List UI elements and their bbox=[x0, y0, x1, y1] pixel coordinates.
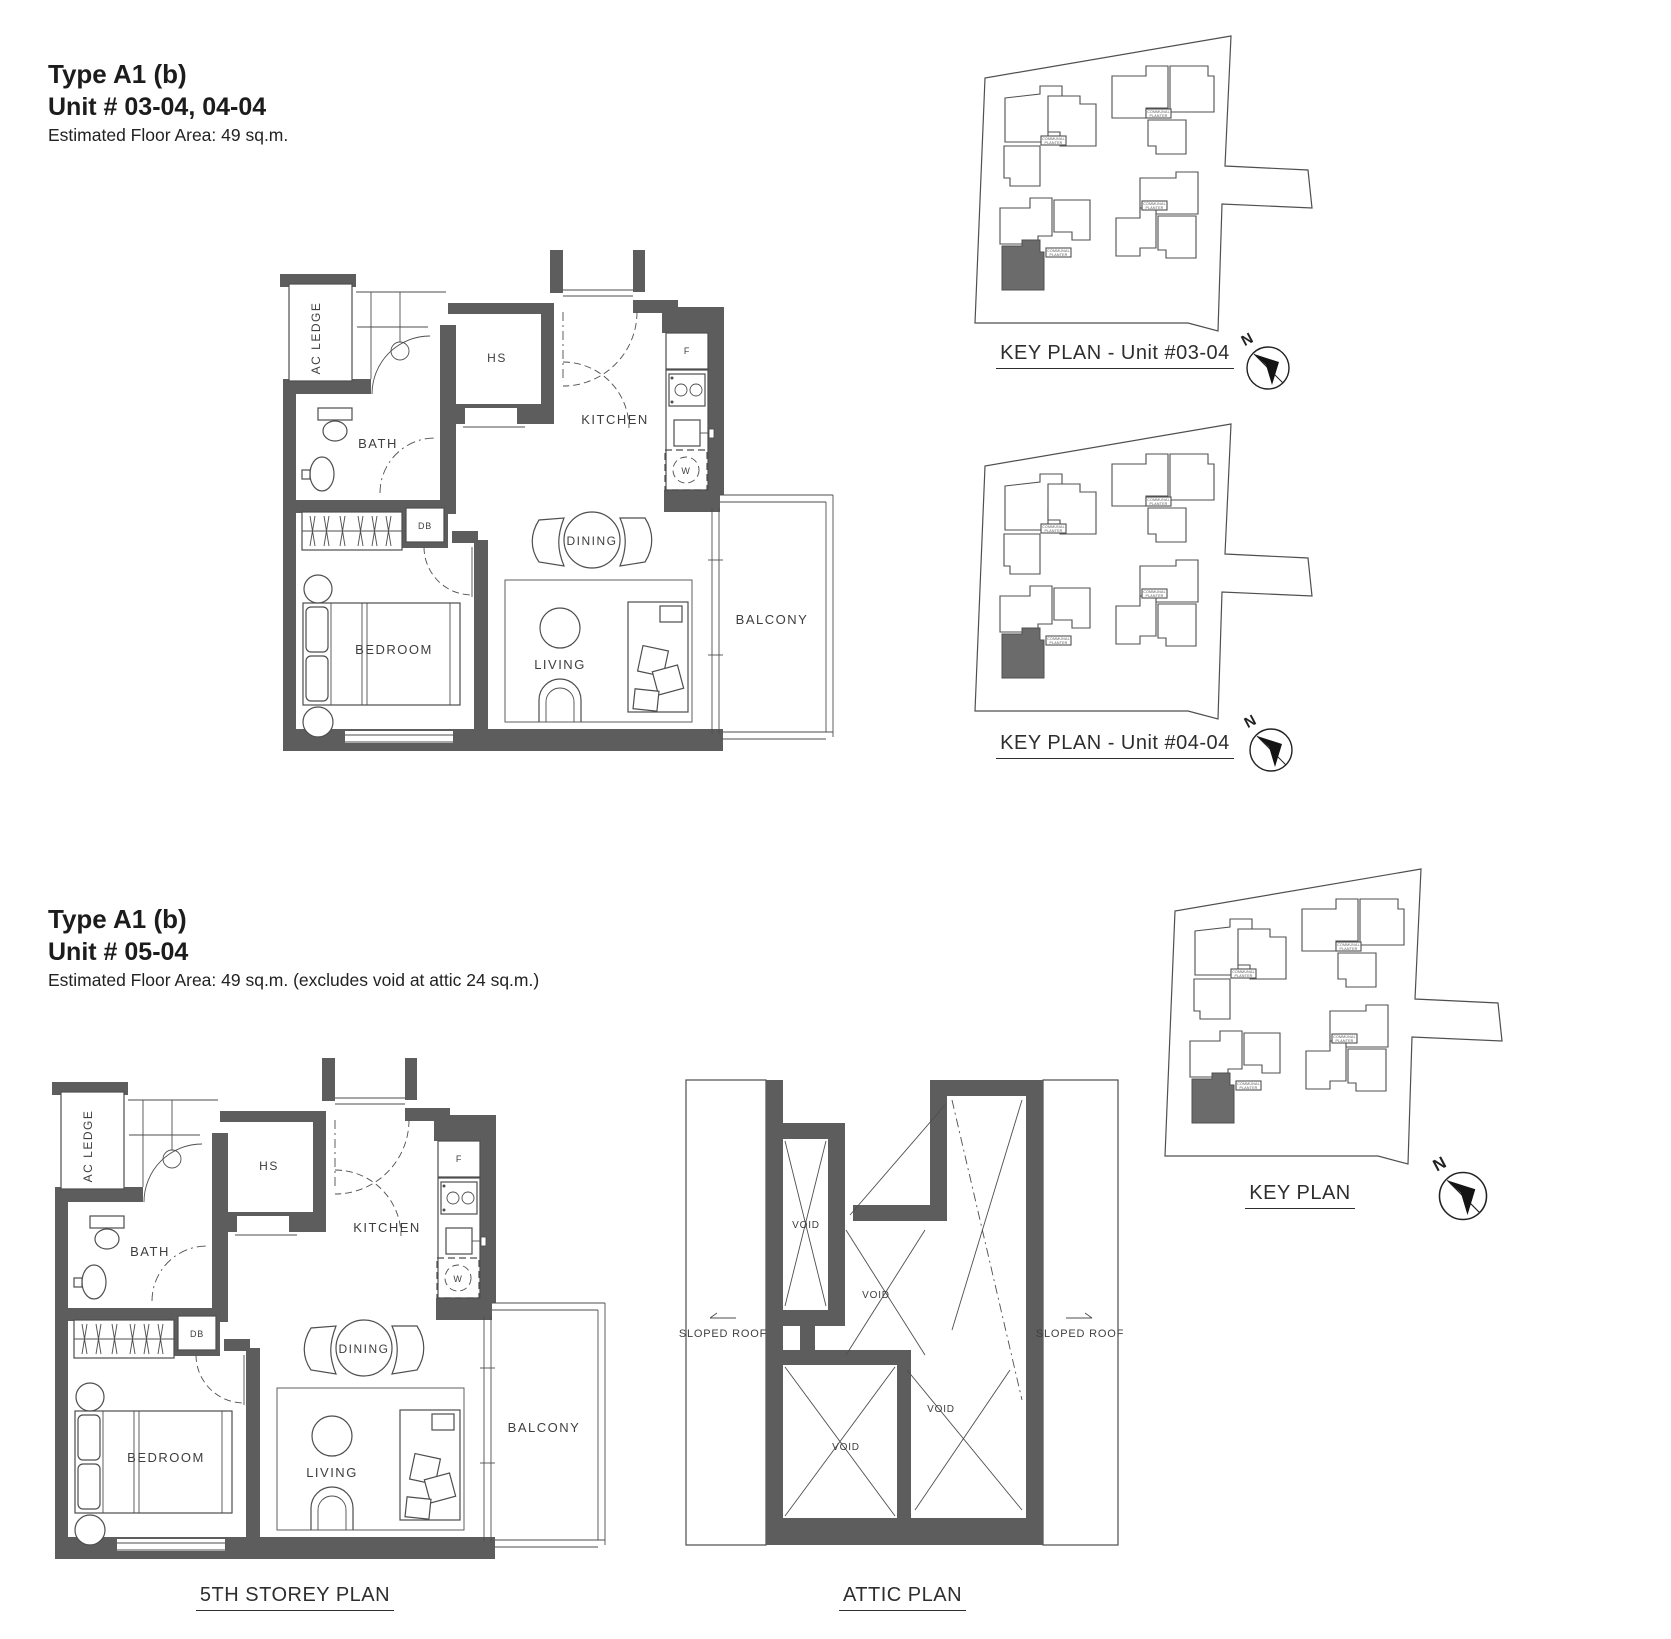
sloped-roof-label: SLOPED ROOF bbox=[1036, 1328, 1124, 1340]
sloped-roof-right bbox=[1043, 1080, 1118, 1545]
room-label-balcony: BALCONY bbox=[508, 1420, 581, 1435]
room-label-ac-ledge: AC LEDGE bbox=[81, 1110, 95, 1183]
caption-attic-plan: ATTIC PLAN bbox=[790, 1584, 1015, 1611]
type-title: Type A1 (b) bbox=[48, 58, 288, 91]
void-label: VOID bbox=[832, 1442, 860, 1453]
room-label-kitchen: KITCHEN bbox=[353, 1220, 421, 1235]
void-label: VOID bbox=[792, 1220, 820, 1231]
label-washer: W bbox=[453, 1274, 462, 1284]
floorplan-drawing: COMMUNAL PLANTER COMMUNAL PLANTER COMMUN… bbox=[0, 0, 1671, 1639]
unit-plan-05-04 bbox=[52, 1058, 605, 1559]
arrow-right-icon bbox=[1066, 1313, 1092, 1318]
room-label-ac-ledge: AC LEDGE bbox=[309, 302, 323, 375]
room-label-hs: HS bbox=[487, 351, 507, 365]
keyplan-unit-04-04 bbox=[975, 424, 1312, 719]
room-label-bedroom: BEDROOM bbox=[127, 1450, 205, 1465]
room-label-dining: DINING bbox=[339, 1342, 390, 1356]
header-top: Type A1 (b) Unit # 03-04, 04-04 Estimate… bbox=[48, 58, 288, 146]
attic-walls bbox=[766, 1080, 1043, 1545]
room-label-bath: BATH bbox=[358, 436, 398, 451]
room-label-balcony: BALCONY bbox=[736, 612, 809, 627]
caption-keyplan-03-04: KEY PLAN - Unit #03-04 bbox=[985, 342, 1245, 369]
room-label-bath: BATH bbox=[130, 1244, 170, 1259]
type-title: Type A1 (b) bbox=[48, 903, 539, 936]
room-label-bedroom: BEDROOM bbox=[355, 642, 433, 657]
room-label-living: LIVING bbox=[534, 657, 586, 672]
caption-5th-storey-plan: 5TH STOREY PLAN bbox=[180, 1584, 410, 1611]
attic-plan: VOID VOID VOID VOID SLOPED ROOF SLOPED R… bbox=[679, 1080, 1124, 1545]
floorplan-page: COMMUNAL PLANTER COMMUNAL PLANTER COMMUN… bbox=[0, 0, 1671, 1639]
room-label-dining: DINING bbox=[567, 534, 618, 548]
room-label-hs: HS bbox=[259, 1159, 279, 1173]
room-label-kitchen: KITCHEN bbox=[581, 412, 649, 427]
unit-plan-03-04 bbox=[280, 250, 833, 751]
unit-title: Unit # 05-04 bbox=[48, 936, 539, 968]
sloped-roof-label: SLOPED ROOF bbox=[679, 1328, 767, 1340]
unit-title: Unit # 03-04, 04-04 bbox=[48, 91, 288, 123]
header-bottom: Type A1 (b) Unit # 05-04 Estimated Floor… bbox=[48, 903, 539, 991]
floor-area: Estimated Floor Area: 49 sq.m. bbox=[48, 125, 288, 146]
void-label: VOID bbox=[862, 1290, 890, 1301]
label-washer: W bbox=[681, 466, 690, 476]
arrow-left-icon bbox=[710, 1313, 736, 1318]
keyplan-unit-05-04 bbox=[1165, 869, 1502, 1164]
void-label: VOID bbox=[927, 1404, 955, 1415]
floor-area: Estimated Floor Area: 49 sq.m. (excludes… bbox=[48, 970, 539, 991]
label-fridge: F bbox=[684, 346, 690, 356]
keyplan-unit-03-04 bbox=[975, 36, 1312, 331]
caption-keyplan-04-04: KEY PLAN - Unit #04-04 bbox=[985, 732, 1245, 759]
room-label-living: LIVING bbox=[306, 1465, 358, 1480]
label-db: DB bbox=[418, 521, 432, 531]
sloped-roof-left bbox=[686, 1080, 766, 1545]
label-db: DB bbox=[190, 1329, 204, 1339]
caption-keyplan: KEY PLAN bbox=[1190, 1182, 1410, 1209]
label-fridge: F bbox=[456, 1154, 462, 1164]
